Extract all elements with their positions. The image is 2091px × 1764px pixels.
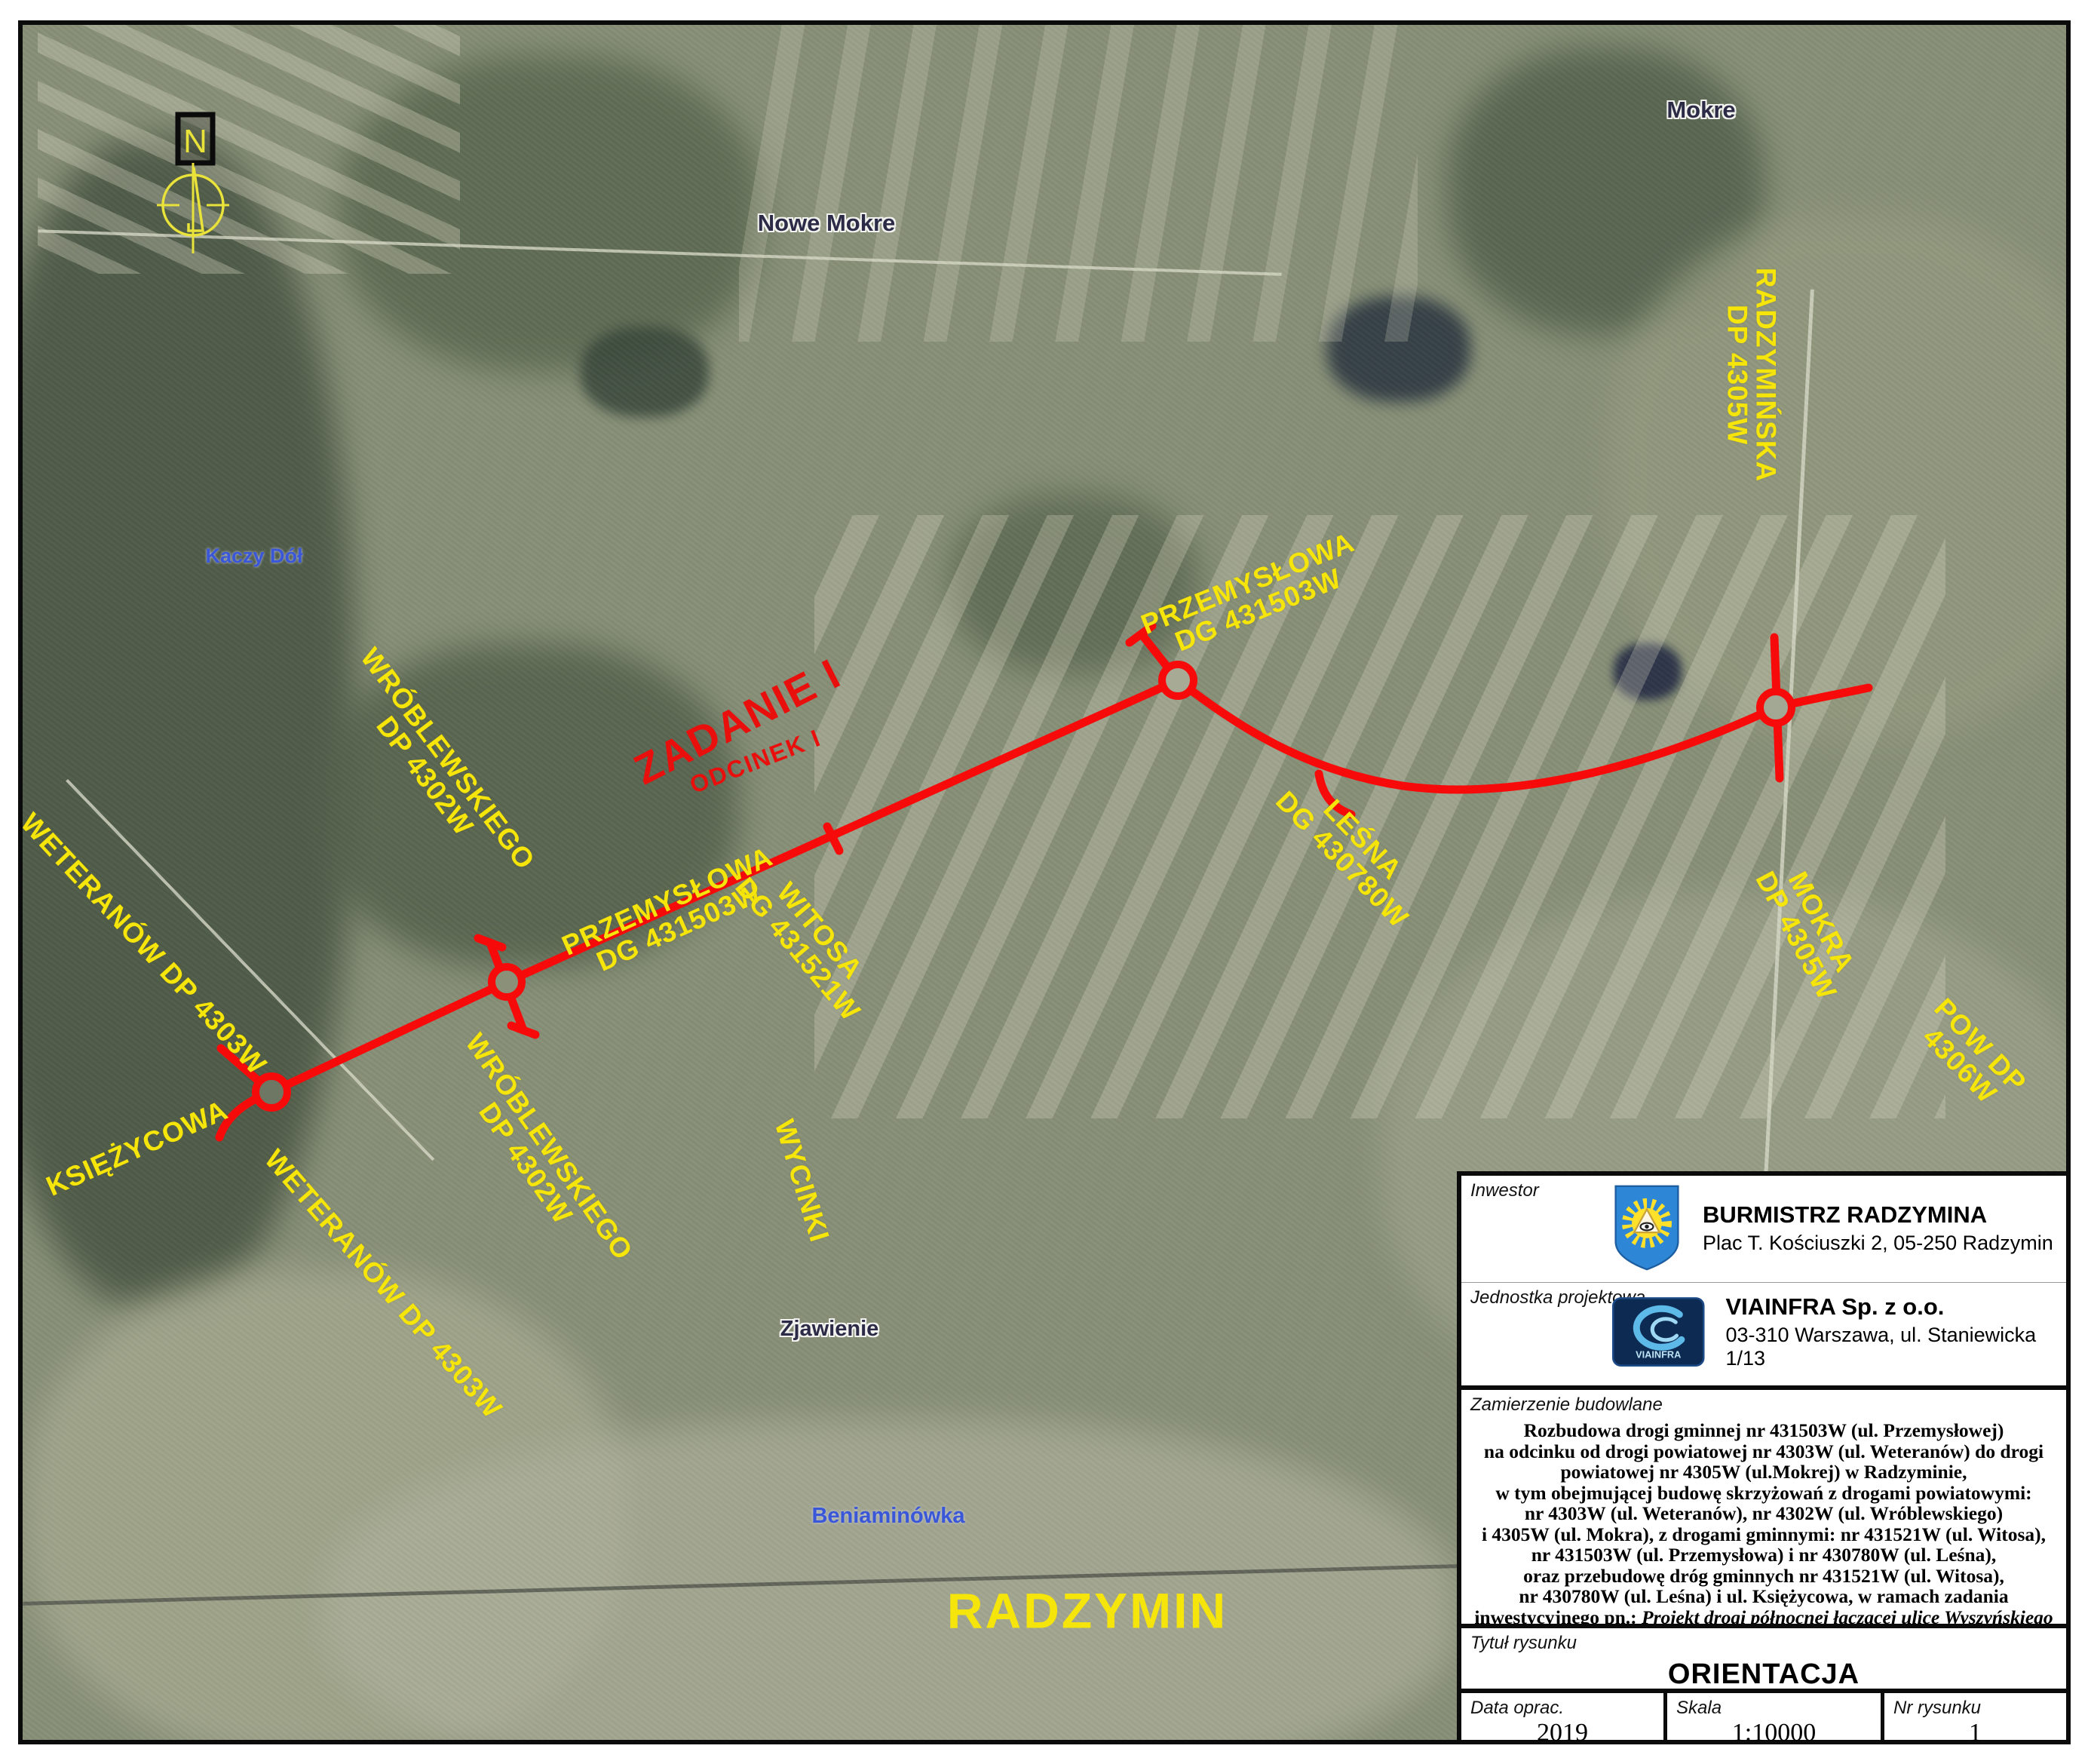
data-oprac-label: Data oprac.: [1470, 1698, 1564, 1719]
titleblock-organizations: Inwestor BURMISTRZ RADZYMINA Plac T. Koś…: [1457, 1171, 2071, 1390]
jednostka-row: Jednostka projektowa VIAINFRA VIAINFRA S…: [1461, 1283, 2066, 1385]
city-label: RADZYMIN: [947, 1585, 1228, 1637]
roundabout-wroblewskiego: [492, 967, 522, 997]
route-segment-lesna-curve: [1178, 680, 1776, 790]
nr-rysunku-label: Nr rysunku: [1893, 1698, 1981, 1719]
jednostka-name: VIAINFRA Sp. z o.o.: [1726, 1293, 2067, 1321]
nr-rysunku-cell: Nr rysunku 1: [1881, 1693, 2066, 1740]
road-label: RADZYMIŃSKADP 4305W: [1722, 268, 1780, 482]
place-label: Beniaminówka: [811, 1505, 964, 1527]
inwestor-row: Inwestor BURMISTRZ RADZYMINA Plac T. Koś…: [1461, 1176, 2066, 1283]
radzymin-crest-icon: [1612, 1183, 1682, 1272]
tytul-label: Tytuł rysunku: [1470, 1633, 1577, 1654]
viainfra-logo-icon: VIAINFRA: [1612, 1296, 1705, 1368]
inwestor-label: Inwestor: [1470, 1180, 1539, 1201]
compass-ticks: [157, 163, 229, 253]
route-tick-wrobl-s: [511, 1026, 535, 1035]
skala-label: Skala: [1676, 1698, 1722, 1719]
skala-cell: Skala 1:10000: [1663, 1693, 1881, 1740]
place-label: Nowe Mokre: [758, 211, 896, 235]
place-label: Mokre: [1666, 98, 1735, 122]
roundabout-przemyslowa: [1162, 664, 1194, 696]
jednostka-address: 03-310 Warszawa, ul. Staniewicka 1/13: [1726, 1324, 2067, 1370]
data-oprac-value: 2019: [1461, 1719, 1663, 1747]
north-letter: N: [183, 123, 207, 160]
route-tick-wrobl-n: [478, 938, 502, 947]
zamierzenie-text: Rozbudowa drogi gminnej nr 431503W (ul. …: [1469, 1420, 2059, 1649]
zamierzenie-label: Zamierzenie budowlane: [1470, 1394, 1663, 1416]
roundabout-mokra: [1760, 692, 1792, 723]
titleblock-tytul: Tytuł rysunku ORIENTACJA: [1457, 1624, 2071, 1693]
titleblock-bottom-row: Data oprac. 2019 Skala 1:10000 Nr rysunk…: [1457, 1689, 2071, 1744]
data-oprac-cell: Data oprac. 2019: [1461, 1693, 1663, 1740]
viainfra-logo-text: VIAINFRA: [1636, 1348, 1681, 1360]
skala-value: 1:10000: [1667, 1719, 1881, 1747]
place-label: Kaczy Dół: [205, 545, 302, 566]
titleblock-zamierzenie: Zamierzenie budowlane Rozbudowa drogi gm…: [1457, 1385, 2071, 1628]
place-label: Zjawienie: [780, 1318, 879, 1340]
roundabout-weteranow: [256, 1076, 287, 1108]
north-compass: N: [157, 115, 229, 253]
drawing-title: ORIENTACJA: [1461, 1658, 2066, 1691]
page: { "colors": { "route_red": "#f60b0a", "r…: [0, 0, 2091, 1764]
nr-rysunku-value: 1: [1884, 1719, 2066, 1747]
inwestor-name: BURMISTRZ RADZYMINA: [1703, 1201, 2053, 1229]
inwestor-address: Plac T. Kościuszki 2, 05-250 Radzymin: [1703, 1232, 2053, 1255]
